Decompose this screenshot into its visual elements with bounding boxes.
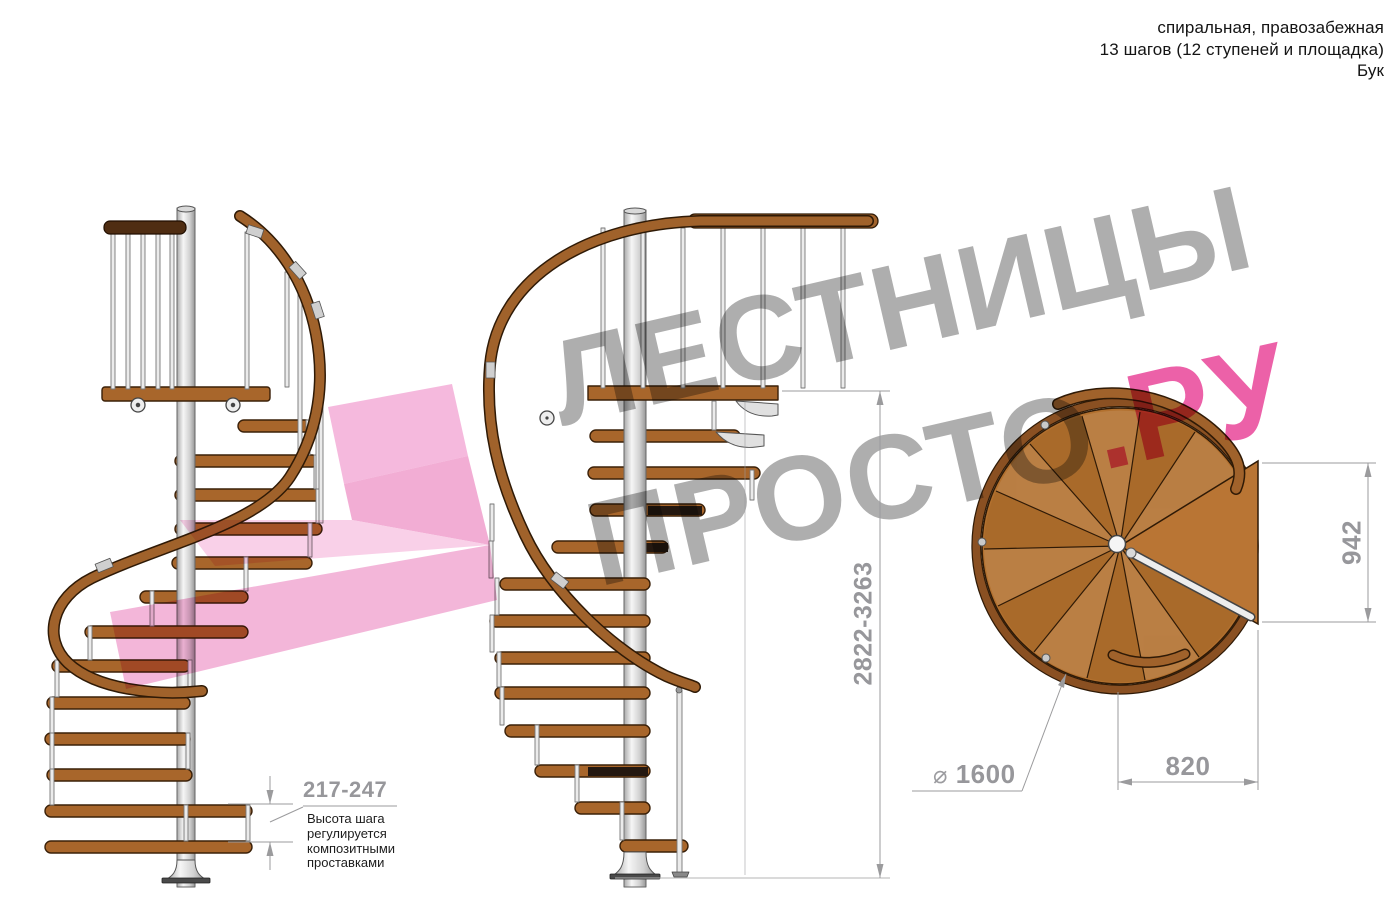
dimension-step-height: 217-247 bbox=[303, 777, 387, 803]
dimension-diameter: ⌀ 1600 bbox=[933, 759, 1016, 790]
material-label: Бук bbox=[1100, 60, 1384, 82]
drawing-canvas: ЛЕСТНИЦЫ ПРОСТО.РУ bbox=[0, 0, 1400, 917]
stair-type-label: спиральная, правозабежная bbox=[1100, 17, 1384, 39]
diameter-icon: ⌀ bbox=[933, 762, 948, 789]
dimension-total-height: 2822-3263 bbox=[850, 544, 879, 704]
dimension-landing-width: 820 bbox=[1128, 751, 1248, 782]
title-block: спиральная, правозабежная 13 шагов (12 с… bbox=[1100, 17, 1384, 82]
dimension-landing-length: 942 bbox=[1337, 463, 1368, 623]
step-height-note: Высота шага регулируется композитными пр… bbox=[307, 812, 395, 871]
step-count-label: 13 шагов (12 ступеней и площадка) bbox=[1100, 39, 1384, 61]
